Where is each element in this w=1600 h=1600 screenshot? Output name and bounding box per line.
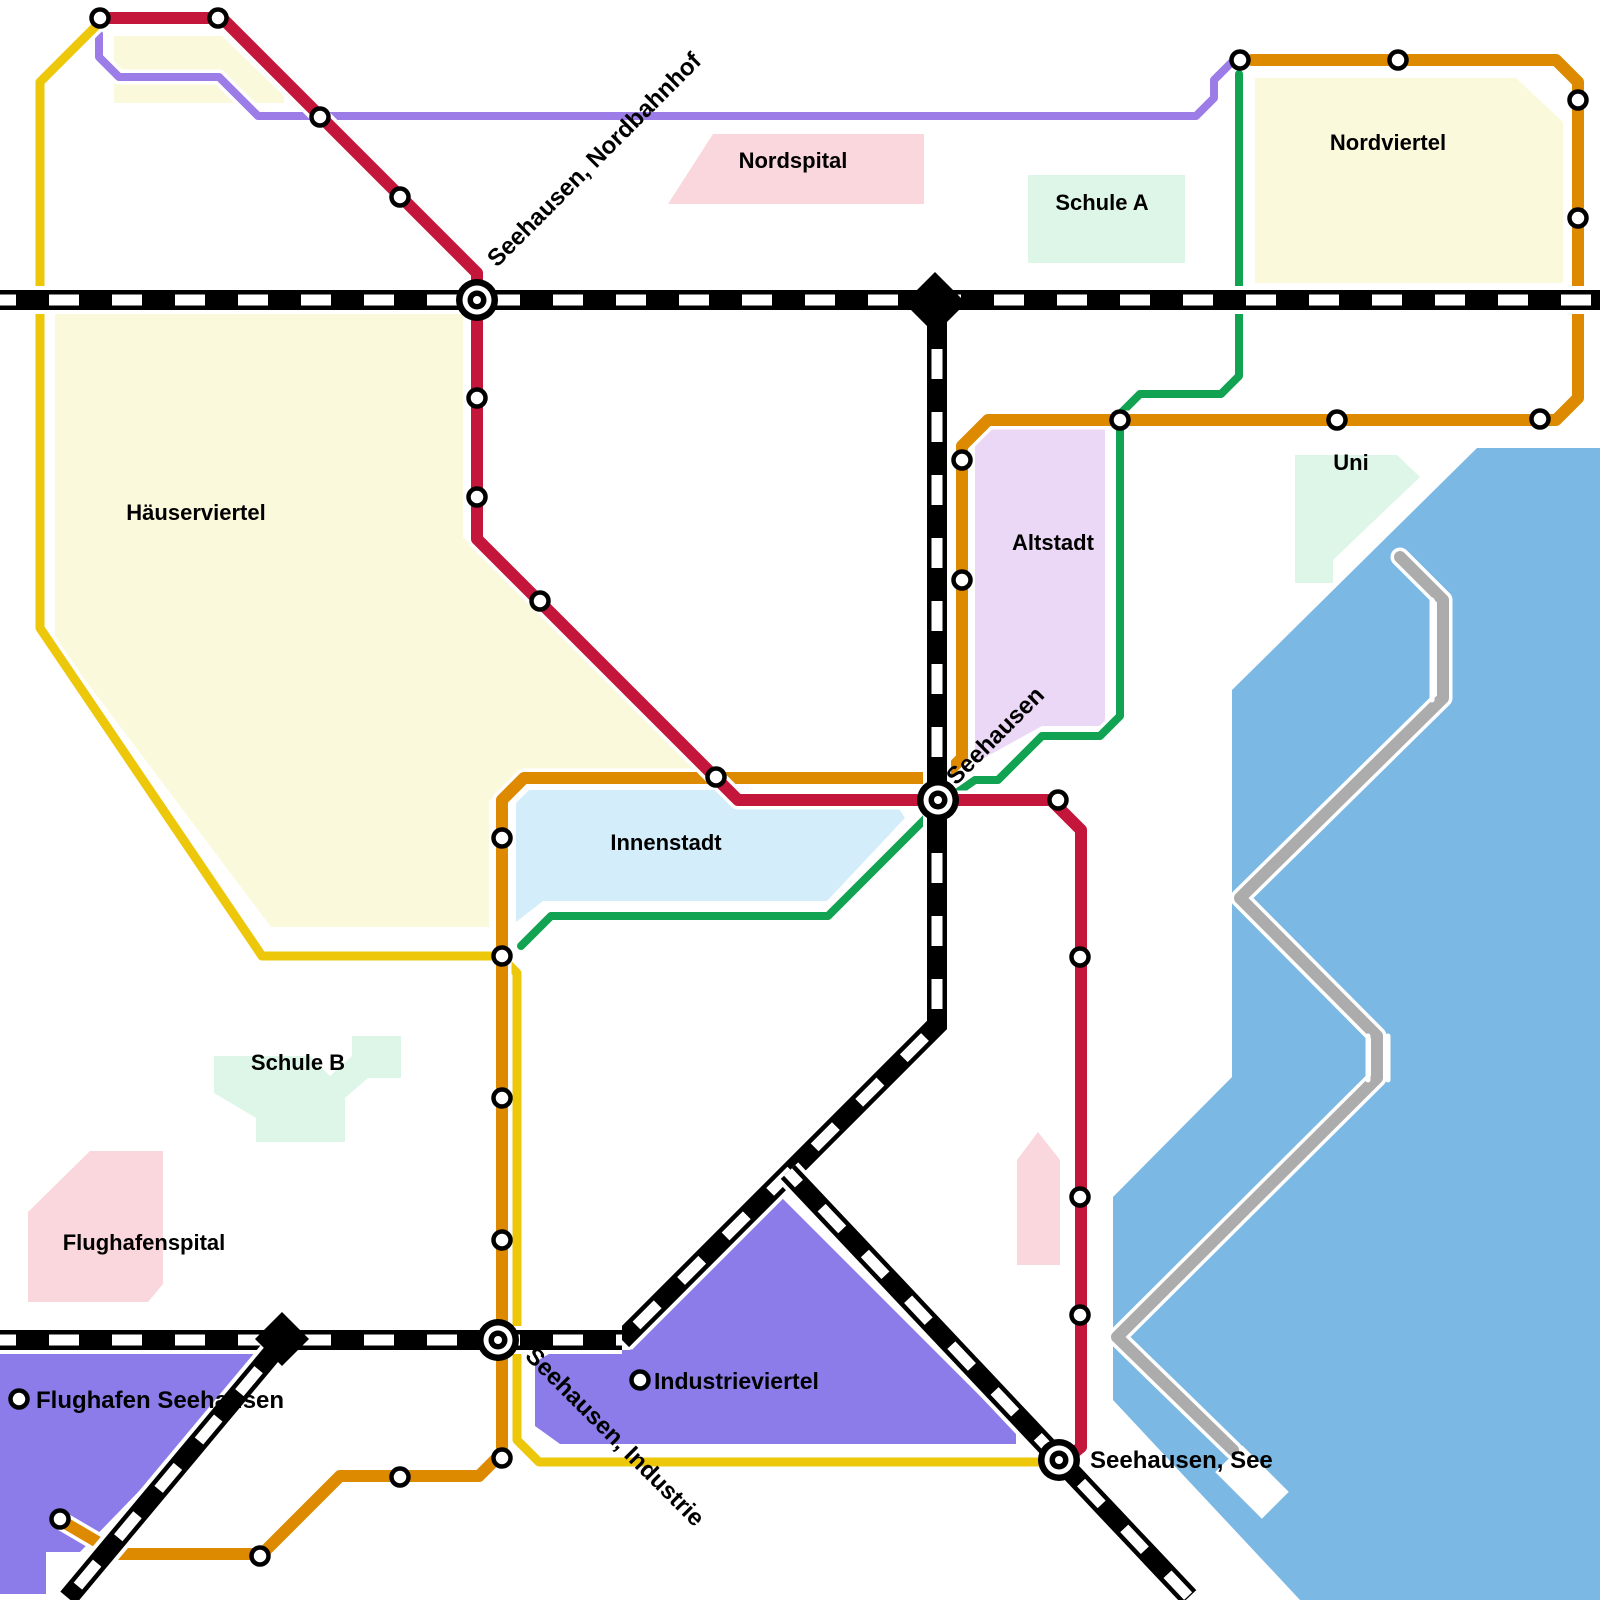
station-dot (1072, 1189, 1089, 1206)
label-seehausen-see: Seehausen, See (1090, 1447, 1273, 1474)
station-dot (210, 10, 227, 27)
station-dot (312, 109, 329, 126)
region-label-uni: Uni (1333, 450, 1368, 475)
station-dot (1072, 1307, 1089, 1324)
region-altstadt (975, 428, 1105, 763)
interchange-seehausen-industrie-dot (494, 1336, 502, 1344)
station-dot (1570, 92, 1587, 109)
transit-map-canvas: HäuserviertelNordviertelNordspitalSchule… (0, 0, 1600, 1600)
region-suedspital-block (1017, 1132, 1060, 1265)
transit-map: HäuserviertelNordviertelNordspitalSchule… (0, 0, 1600, 1600)
region-label-innenstadt: Innenstadt (610, 830, 722, 855)
region-label-schule-b: Schule B (251, 1050, 345, 1075)
region-label-haeuserviertel: Häuserviertel (126, 500, 265, 525)
station-dot (954, 572, 971, 589)
region-label-nordspital: Nordspital (739, 148, 848, 173)
station-dot (252, 1548, 269, 1565)
station-dot (52, 1511, 69, 1528)
station-dot (392, 189, 409, 206)
region-label-schule-a: Schule A (1055, 190, 1148, 215)
label-industrieviertel: Industrieviertel (654, 1368, 819, 1394)
station-dot (1570, 210, 1587, 227)
station-dot (494, 1450, 511, 1467)
station-dot (1329, 412, 1346, 429)
station-dot (494, 948, 511, 965)
station-dot (494, 830, 511, 847)
station-dot (1390, 52, 1407, 69)
station-dot (1112, 412, 1129, 429)
station-dot (532, 593, 549, 610)
station-dot (1072, 949, 1089, 966)
region-label-altstadt: Altstadt (1012, 530, 1095, 555)
station-dot (954, 452, 971, 469)
station-dot (392, 1469, 409, 1486)
region-flughafenspital (28, 1151, 163, 1302)
station-dot (469, 390, 486, 407)
station-dot (11, 1391, 28, 1408)
station-dot (469, 489, 486, 506)
region-nordviertel (1255, 78, 1563, 283)
station-dot (1232, 52, 1249, 69)
station-dot (632, 1372, 649, 1389)
interchange-seehausen-see-dot (1055, 1456, 1063, 1464)
region-schule-a (1028, 175, 1185, 263)
label-seehausen-nordbahnhof: Seehausen, Nordbahnhof (482, 47, 707, 272)
station-dot (1050, 792, 1067, 809)
region-label-flughafenspital: Flughafenspital (63, 1230, 226, 1255)
region-label-nordviertel: Nordviertel (1330, 130, 1446, 155)
station-dot (92, 10, 109, 27)
station-dot (494, 1090, 511, 1107)
interchange-seehausen-nordbahnhof-dot (473, 296, 481, 304)
station-dot (1532, 411, 1549, 428)
station-dot (708, 769, 725, 786)
label-flughafen-seehausen: Flughafen Seehausen (36, 1387, 284, 1414)
station-dot (494, 1232, 511, 1249)
railway-junction-diamond (904, 272, 966, 334)
interchange-seehausen-dot (934, 796, 942, 804)
